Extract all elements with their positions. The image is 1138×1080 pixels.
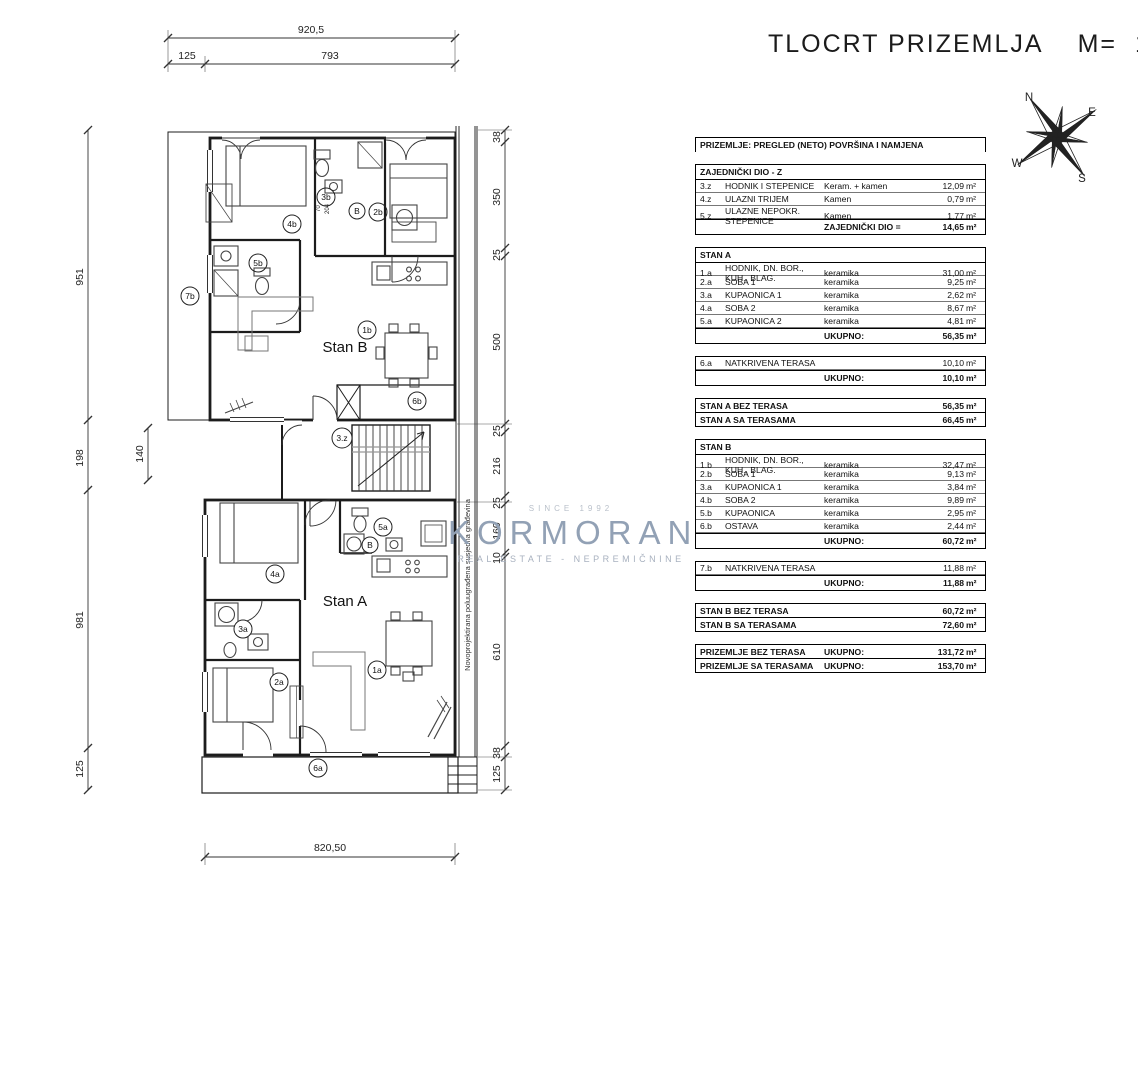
table-section-4: STAN B1.bHODNIK, DN. BOR., KUH., BLAG.ke… — [695, 439, 986, 549]
cell-material: keramika — [824, 521, 914, 531]
cell-unit: m² — [964, 222, 981, 232]
dim-right-3: 25 — [491, 249, 503, 261]
areas-table-sections: ZAJEDNIČKI DIO - Z3.zHODNIK I STEPENICEK… — [695, 164, 986, 673]
cell-value: 12,09 — [914, 181, 964, 191]
cell-unit: m² — [964, 508, 981, 518]
dim-right-7: 25 — [491, 497, 503, 509]
table-total-row: UKUPNO:10,10m² — [696, 370, 985, 385]
sheet-title-text: TLOCRT PRIZEMLJA — [768, 30, 1044, 59]
cell-unit: m² — [964, 331, 981, 341]
cell-code: 6.b — [700, 521, 725, 531]
side-note-label: Novoprojektirana poluugrađena susjedna g… — [463, 498, 472, 671]
floorplan-sheet: 920,5 125 793 820,50 951 198 140 981 125… — [0, 0, 1138, 1080]
cell-unit: m² — [964, 415, 981, 425]
cell-value: 10,10 — [914, 358, 964, 368]
svg-text:3.z: 3.z — [336, 433, 347, 443]
compass-e-label: E — [1088, 107, 1096, 119]
cell-value: 14,65 — [914, 222, 964, 232]
tag-4b: 4b — [283, 215, 301, 233]
cell-unit: m² — [964, 606, 981, 616]
cell-value: 11,88 — [914, 578, 964, 588]
cell-value: 9,13 — [914, 469, 964, 479]
cell-value: 4,81 — [914, 316, 964, 326]
section-header: ZAJEDNIČKI DIO - Z — [696, 165, 985, 180]
table-row: 3.aKUPAONICA 1keramika3,84m² — [696, 481, 985, 494]
table-section-7: PRIZEMLJE BEZ TERASAUKUPNO:131,72m²PRIZE… — [695, 644, 986, 673]
table-row: 6.aNATKRIVENA TERASA10,10m² — [696, 357, 985, 370]
cell-material: keramika — [824, 469, 914, 479]
cell-total-label: UKUPNO: — [824, 578, 914, 588]
cell-code: 2.b — [700, 469, 725, 479]
cell-material: keramika — [824, 290, 914, 300]
terrace-6a — [202, 757, 477, 793]
cell-name: KUPAONICA 2 — [725, 316, 824, 326]
dim-left-2-inner: 140 — [134, 445, 146, 463]
cell-value: 11,88 — [914, 563, 964, 573]
table-section-6: STAN B BEZ TERASA60,72m²STAN B SA TERASA… — [695, 603, 986, 632]
table-summary-row: STAN A BEZ TERASA56,35m² — [696, 399, 985, 412]
stan-a-furniture — [213, 503, 451, 739]
svg-text:B: B — [354, 206, 360, 216]
cell-code: 4.b — [700, 495, 725, 505]
svg-text:6b: 6b — [412, 396, 422, 406]
areas-table-title: PRIZEMLJE: PREGLED (NETO) POVRŠINA I NAM… — [695, 137, 986, 152]
tag-1a: 1a — [368, 661, 386, 679]
scale-label: M= — [1078, 30, 1117, 59]
table-section-3: STAN A BEZ TERASA56,35m²STAN A SA TERASA… — [695, 398, 986, 427]
cell-unit: m² — [964, 181, 981, 191]
cell-unit: m² — [964, 578, 981, 588]
cell-unit: m² — [964, 290, 981, 300]
table-row: 3.zHODNIK I STEPENICEKeram. + kamen12,09… — [696, 180, 985, 193]
cell-label: PRIZEMLJE BEZ TERASA — [700, 647, 824, 657]
cell-name: ULAZNE NEPOKR. STEPENICE — [725, 206, 824, 226]
cell-name: SOBA 1 — [725, 469, 824, 479]
cell-code: 5.z — [700, 211, 725, 221]
table-section-2: 6.aNATKRIVENA TERASA10,10m²UKUPNO:10,10m… — [695, 356, 986, 386]
cell-code: 4.a — [700, 303, 725, 313]
section-header: STAN B — [696, 440, 985, 455]
cell-total-label: UKUPNO: — [824, 331, 914, 341]
table-row: 5.aKUPAONICA 2keramika4,81m² — [696, 315, 985, 328]
cell-value: 9,89 — [914, 495, 964, 505]
cell-value: 1,77 — [914, 211, 964, 221]
cell-material: keramika — [824, 482, 914, 492]
dim-right-6: 216 — [491, 457, 503, 475]
dim-right-8: 160 — [491, 522, 503, 540]
cell-label: PRIZEMLJE SA TERASAMA — [700, 661, 824, 671]
cell-unit: m² — [964, 536, 981, 546]
table-row: 4.aSOBA 2keramika8,67m² — [696, 302, 985, 315]
table-summary-row: STAN A SA TERASAMA66,45m² — [696, 412, 985, 426]
table-row: 1.aHODNIK, DN. BOR., KUH., BLAG.keramika… — [696, 263, 985, 276]
dim-top-left: 125 — [178, 50, 196, 62]
cell-value: 2,44 — [914, 521, 964, 531]
cell-unit: m² — [964, 358, 981, 368]
tag-6b: 6b — [408, 392, 426, 410]
cell-name: SOBA 2 — [725, 495, 824, 505]
svg-text:4b: 4b — [287, 219, 297, 229]
table-section-1: STAN A1.aHODNIK, DN. BOR., KUH., BLAG.ke… — [695, 247, 986, 344]
svg-text:3b: 3b — [321, 192, 331, 202]
tag-3a: 3a — [234, 620, 252, 638]
svg-text:B: B — [367, 540, 373, 550]
cell-code: 6.a — [700, 358, 725, 368]
dim-top-total: 920,5 — [298, 24, 324, 36]
sheet-title: TLOCRT PRIZEMLJA M= 1:100 — [768, 30, 1138, 59]
cell-code: 5.b — [700, 508, 725, 518]
cell-name: OSTAVA — [725, 521, 824, 531]
compass-s-label: S — [1078, 173, 1086, 185]
tag-2a: 2a — [270, 673, 288, 691]
cell-value: 9,25 — [914, 277, 964, 287]
cell-name: SOBA 1 — [725, 277, 824, 287]
cell-value: 2,62 — [914, 290, 964, 300]
tag-5a: 5a — [374, 518, 392, 536]
compass-n-label: N — [1025, 92, 1033, 104]
compass-w-label: W — [1012, 158, 1023, 170]
dim-right-10: 610 — [491, 643, 503, 661]
cell-value: 56,35 — [914, 331, 964, 341]
cell-name: ULAZNI TRIJEM — [725, 194, 824, 204]
table-row: 6.bOSTAVAkeramika2,44m² — [696, 520, 985, 533]
cell-code: 7.b — [700, 563, 725, 573]
cell-mid-label: UKUPNO: — [824, 661, 914, 671]
cell-name: NATKRIVENA TERASA — [725, 563, 824, 573]
section-header: STAN A — [696, 248, 985, 263]
cell-code: 4.z — [700, 194, 725, 204]
cell-material: keramika — [824, 277, 914, 287]
cell-unit: m² — [964, 401, 981, 411]
cell-label: STAN A BEZ TERASA — [700, 401, 824, 411]
dim-left-2: 198 — [74, 449, 86, 467]
svg-text:2a: 2a — [274, 677, 284, 687]
cell-code: 3.z — [700, 181, 725, 191]
cell-unit: m² — [964, 303, 981, 313]
dim-right-5: 25 — [491, 425, 503, 437]
cell-unit: m² — [964, 647, 981, 657]
table-row: 2.aSOBA 1keramika9,25m² — [696, 276, 985, 289]
table-row: 2.bSOBA 1keramika9,13m² — [696, 468, 985, 481]
svg-text:3a: 3a — [238, 624, 248, 634]
cell-value: 3,84 — [914, 482, 964, 492]
stan-b-furniture — [206, 142, 447, 413]
cell-label: STAN A SA TERASAMA — [700, 415, 824, 425]
cell-value: 10,10 — [914, 373, 964, 383]
table-section-0: ZAJEDNIČKI DIO - Z3.zHODNIK I STEPENICEK… — [695, 164, 986, 235]
table-summary-row: PRIZEMLJE SA TERASAMAUKUPNO:153,70m² — [696, 658, 985, 672]
cell-mid-label: UKUPNO: — [824, 647, 914, 657]
tag-3z: 3.z — [332, 428, 352, 448]
svg-text:1b: 1b — [362, 325, 372, 335]
cell-unit: m² — [964, 521, 981, 531]
table-row: 3.aKUPAONICA 1keramika2,62m² — [696, 289, 985, 302]
dim-top-right: 793 — [321, 50, 339, 62]
svg-text:1a: 1a — [372, 665, 382, 675]
stan-b-label: Stan B — [322, 339, 367, 356]
cell-name: KUPAONICA 1 — [725, 482, 824, 492]
tag-6a: 6a — [309, 759, 327, 777]
table-row: 4.bSOBA 2keramika9,89m² — [696, 494, 985, 507]
svg-text:4a: 4a — [270, 569, 280, 579]
dim-right-12: 125 — [491, 765, 503, 783]
tag-b-upper: B — [349, 203, 365, 219]
cell-name: SOBA 2 — [725, 303, 824, 313]
cell-unit: m² — [964, 495, 981, 505]
apartment-labels: Stan B Stan A — [322, 339, 367, 610]
cell-code: 3.a — [700, 482, 725, 492]
cell-material: Keram. + kamen — [824, 181, 914, 191]
cell-label: STAN B SA TERASAMA — [700, 620, 824, 630]
table-summary-row: STAN B BEZ TERASA60,72m² — [696, 604, 985, 617]
dim-right-11: 38 — [491, 747, 503, 759]
table-row: 7.bNATKRIVENA TERASA11,88m² — [696, 562, 985, 575]
tag-1b: 1b — [358, 321, 376, 339]
cell-code: 3.a — [700, 290, 725, 300]
cell-unit: m² — [964, 482, 981, 492]
cell-value: 153,70 — [914, 661, 964, 671]
tag-b-lower: B — [362, 537, 378, 553]
tag-5b: 5b — [249, 254, 267, 272]
table-total-row: UKUPNO:56,35m² — [696, 328, 985, 343]
table-total-row: UKUPNO:11,88m² — [696, 575, 985, 590]
svg-text:5a: 5a — [378, 522, 388, 532]
table-row: 5.zULAZNE NEPOKR. STEPENICEKamen1,77m² — [696, 206, 985, 219]
svg-text:6a: 6a — [313, 763, 323, 773]
cell-total-label: UKUPNO: — [824, 536, 914, 546]
dim-right-9: 10 — [491, 552, 503, 564]
cell-name: HODNIK I STEPENICE — [725, 181, 824, 191]
cell-unit: m² — [964, 194, 981, 204]
cell-unit: m² — [964, 373, 981, 383]
cell-total-label: ZAJEDNIČKI DIO = — [824, 222, 914, 232]
svg-text:7b: 7b — [185, 291, 195, 301]
cell-code: 5.a — [700, 316, 725, 326]
cell-unit: m² — [964, 469, 981, 479]
stan-a-label: Stan A — [323, 593, 367, 610]
cell-material: Kamen — [824, 211, 914, 221]
tag-3b: 3b — [317, 188, 335, 206]
tag-7b: 7b — [181, 287, 199, 305]
cell-name: KUPAONICA 1 — [725, 290, 824, 300]
dim-left-1: 951 — [74, 268, 86, 286]
cell-code: 2.a — [700, 277, 725, 287]
table-section-5: 7.bNATKRIVENA TERASA11,88m²UKUPNO:11,88m… — [695, 561, 986, 591]
table-row: 4.zULAZNI TRIJEMKamen0,79m² — [696, 193, 985, 206]
sheet-scale: M= 1:100 — [1078, 30, 1138, 59]
table-row: 5.bKUPAONICAkeramika2,95m² — [696, 507, 985, 520]
cell-unit: m² — [964, 620, 981, 630]
cell-total-label: UKUPNO: — [824, 373, 914, 383]
dim-right-1: 38 — [491, 131, 503, 143]
table-total-row: UKUPNO:60,72m² — [696, 533, 985, 548]
cell-value: 56,35 — [914, 401, 964, 411]
table-summary-row: PRIZEMLJE BEZ TERASAUKUPNO:131,72m² — [696, 645, 985, 658]
table-row: 1.bHODNIK, DN. BOR., KUH., BLAG.keramika… — [696, 455, 985, 468]
cell-value: 0,79 — [914, 194, 964, 204]
cell-value: 60,72 — [914, 536, 964, 546]
dim-inner-1: 70 — [316, 205, 322, 212]
dim-left-4: 125 — [74, 760, 86, 778]
cell-material: keramika — [824, 303, 914, 313]
cell-unit: m² — [964, 661, 981, 671]
svg-text:2b: 2b — [373, 207, 383, 217]
cell-label: STAN B BEZ TERASA — [700, 606, 824, 616]
cell-name: NATKRIVENA TERASA — [725, 358, 824, 368]
cell-name: KUPAONICA — [725, 508, 824, 518]
cell-material: Kamen — [824, 194, 914, 204]
cell-value: 72,60 — [914, 620, 964, 630]
cell-value: 66,45 — [914, 415, 964, 425]
dimension-lines — [84, 30, 512, 865]
compass-rose: N E W S — [990, 70, 1124, 204]
cell-value: 131,72 — [914, 647, 964, 657]
dim-left-3: 981 — [74, 611, 86, 629]
cell-material: keramika — [824, 508, 914, 518]
cell-unit: m² — [964, 563, 981, 573]
tag-4a: 4a — [266, 565, 284, 583]
dim-bottom-total: 820,50 — [314, 842, 346, 854]
dim-right-4: 500 — [491, 333, 503, 351]
areas-table: PRIZEMLJE: PREGLED (NETO) POVRŠINA I NAM… — [695, 137, 986, 673]
cell-material: keramika — [824, 316, 914, 326]
cell-unit: m² — [964, 316, 981, 326]
cell-unit: m² — [964, 211, 981, 221]
dim-right-2: 350 — [491, 188, 503, 206]
svg-text:5b: 5b — [253, 258, 263, 268]
cell-value: 8,67 — [914, 303, 964, 313]
room-tags: 7b 4b 3b B 2b 5b 1b 6b 3.z 4a 5a B 3a 2a… — [181, 188, 426, 777]
cell-unit: m² — [964, 277, 981, 287]
cell-value: 2,95 — [914, 508, 964, 518]
table-summary-row: STAN B SA TERASAMA72,60m² — [696, 617, 985, 631]
cell-material: keramika — [824, 495, 914, 505]
cell-value: 60,72 — [914, 606, 964, 616]
